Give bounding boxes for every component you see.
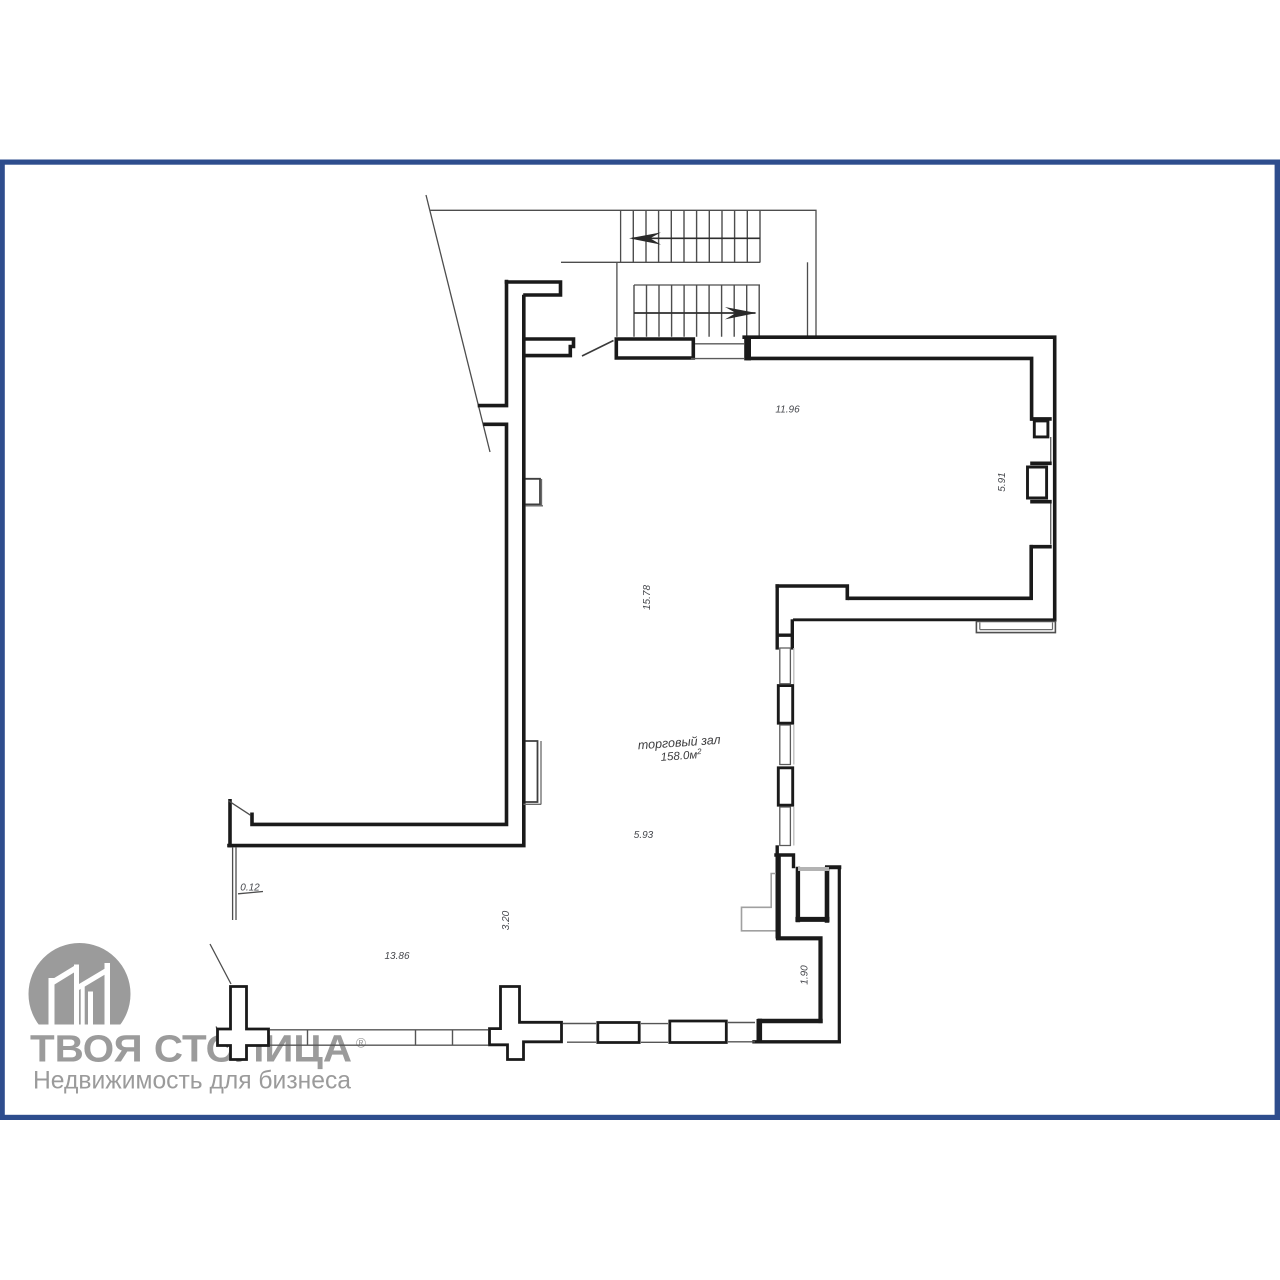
svg-text:ТВОЯ СТОЛИЦА: ТВОЯ СТОЛИЦА — [30, 1029, 352, 1071]
svg-text:0.12: 0.12 — [240, 883, 260, 894]
svg-text:11.96: 11.96 — [775, 405, 800, 416]
svg-text:Недвижимость для бизнеса: Недвижимость для бизнеса — [33, 1067, 351, 1095]
svg-text:13.86: 13.86 — [384, 951, 409, 962]
svg-text:®: ® — [356, 1036, 366, 1051]
svg-text:5.91: 5.91 — [997, 472, 1008, 491]
svg-text:5.93: 5.93 — [634, 830, 654, 841]
svg-text:3.20: 3.20 — [501, 910, 512, 930]
svg-text:1.90: 1.90 — [800, 965, 811, 985]
svg-text:15.78: 15.78 — [642, 585, 653, 610]
